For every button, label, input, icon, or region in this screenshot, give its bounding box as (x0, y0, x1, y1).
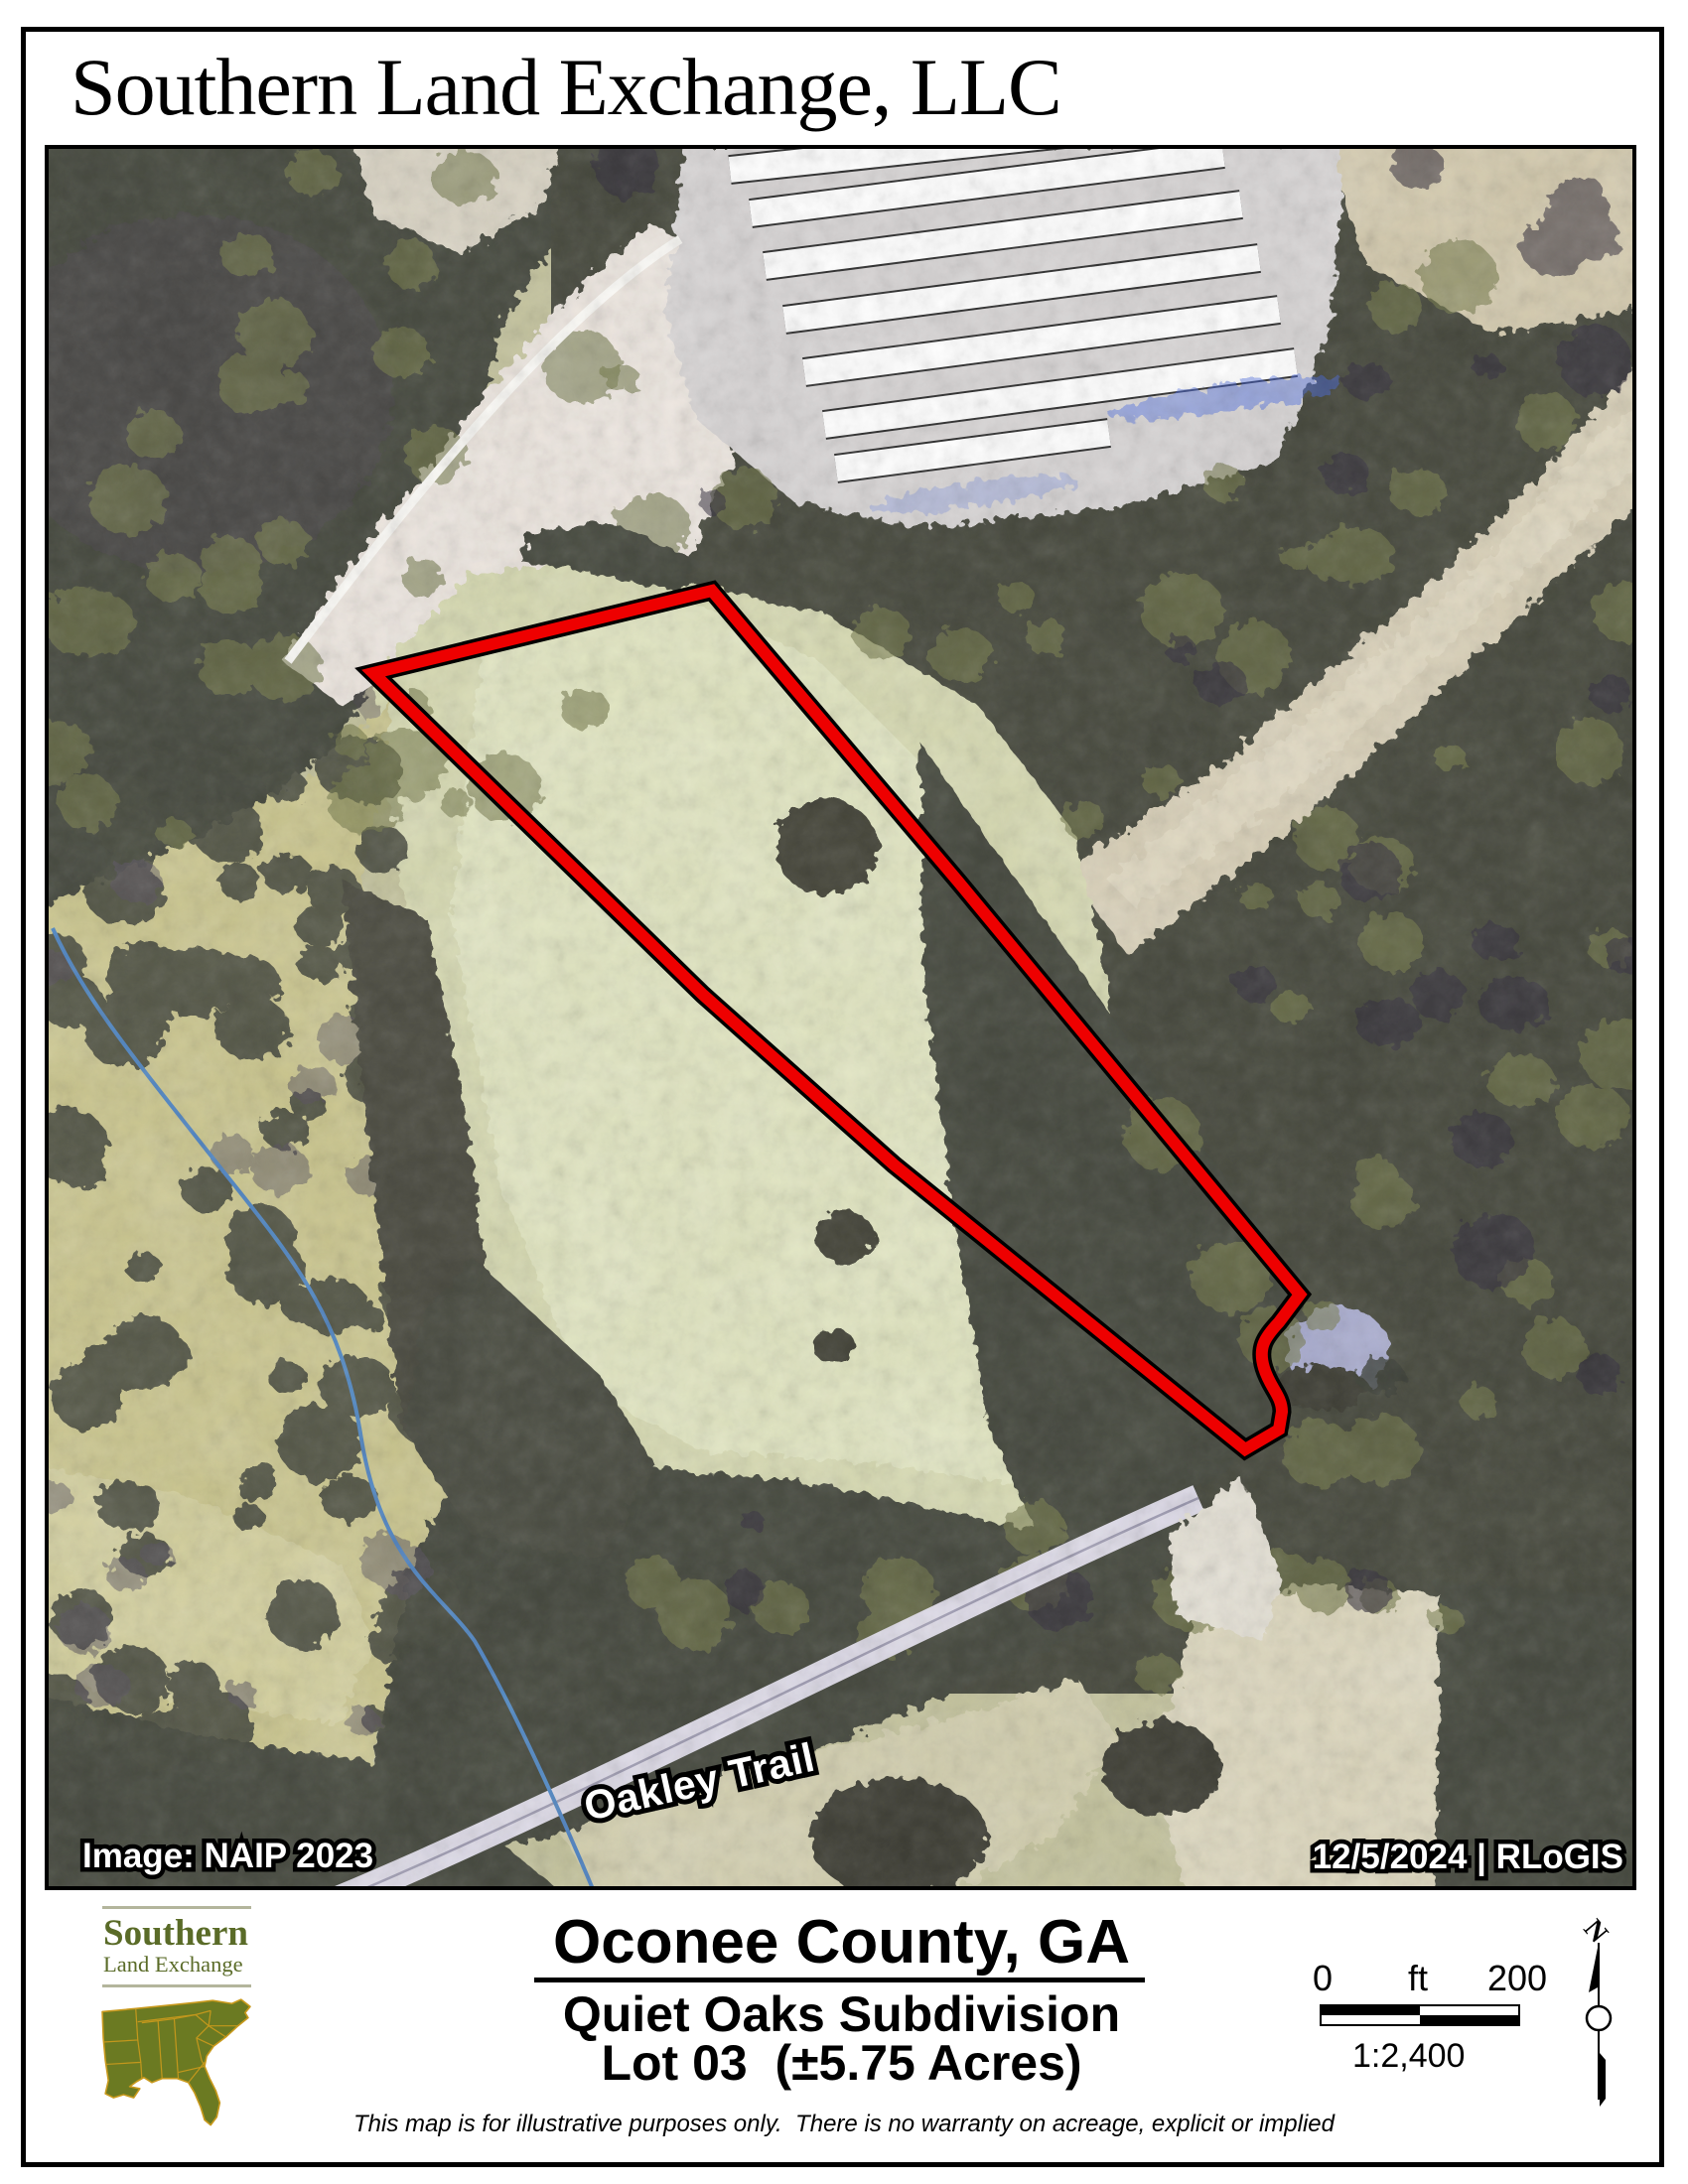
svg-text:Image: NAIP 2023: Image: NAIP 2023 (82, 1837, 373, 1875)
svg-text:12/5/2024 | RLoGIS: 12/5/2024 | RLoGIS (1313, 1838, 1623, 1876)
svg-text:N: N (1577, 1914, 1614, 1949)
